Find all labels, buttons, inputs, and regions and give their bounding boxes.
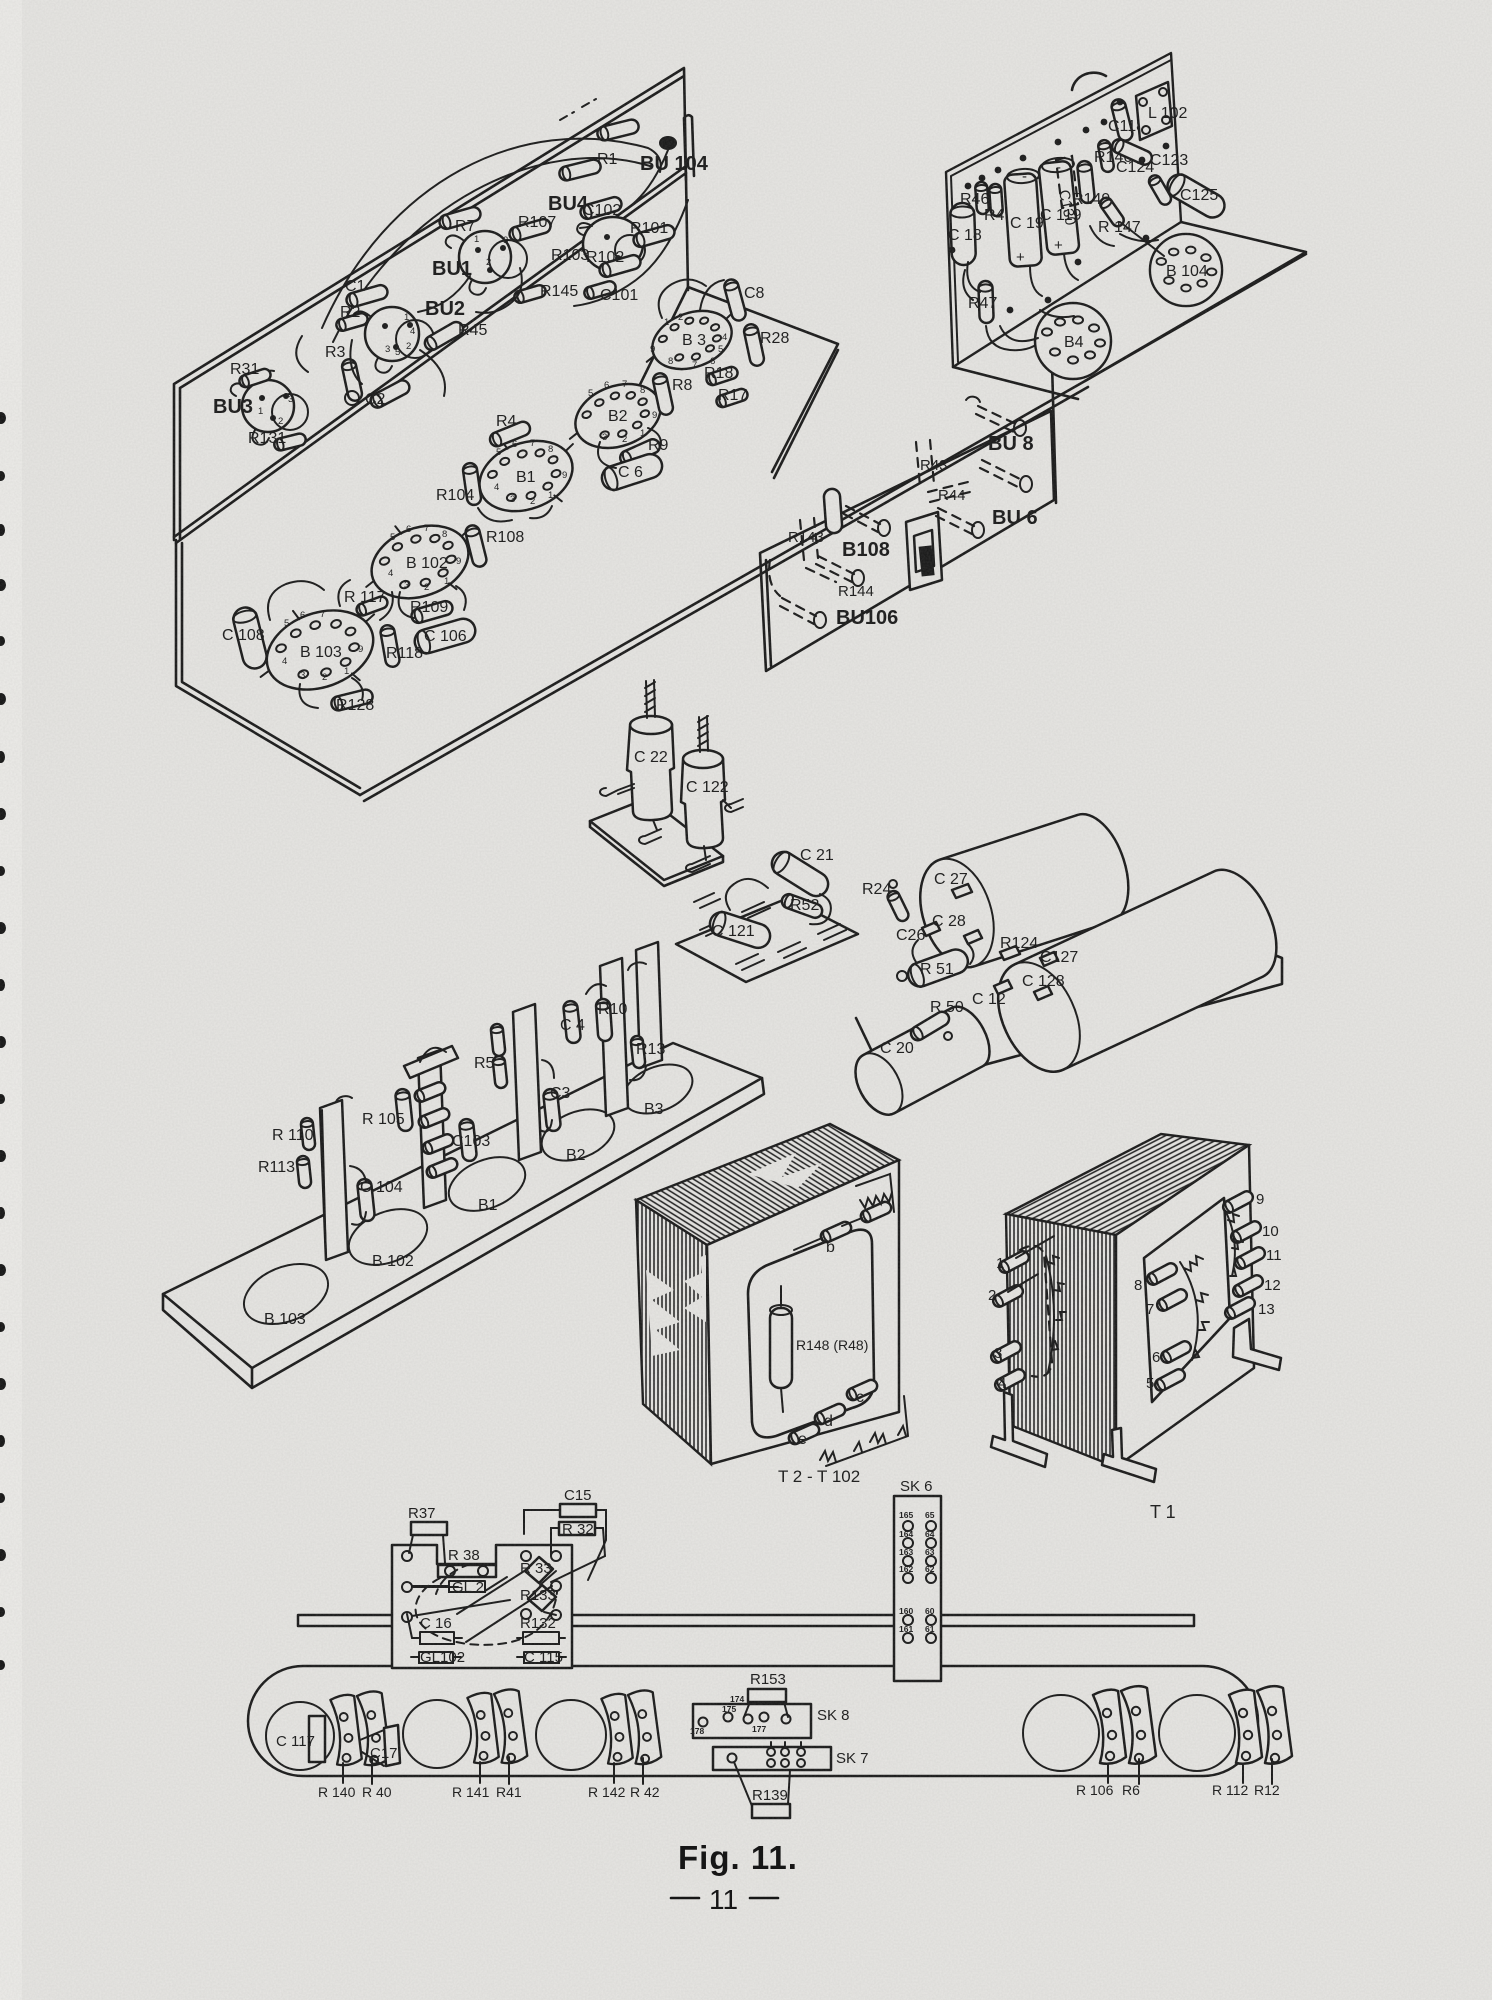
svg-text:Fig. 11.: Fig. 11. bbox=[678, 1839, 798, 1876]
svg-text:11: 11 bbox=[709, 1884, 738, 1915]
